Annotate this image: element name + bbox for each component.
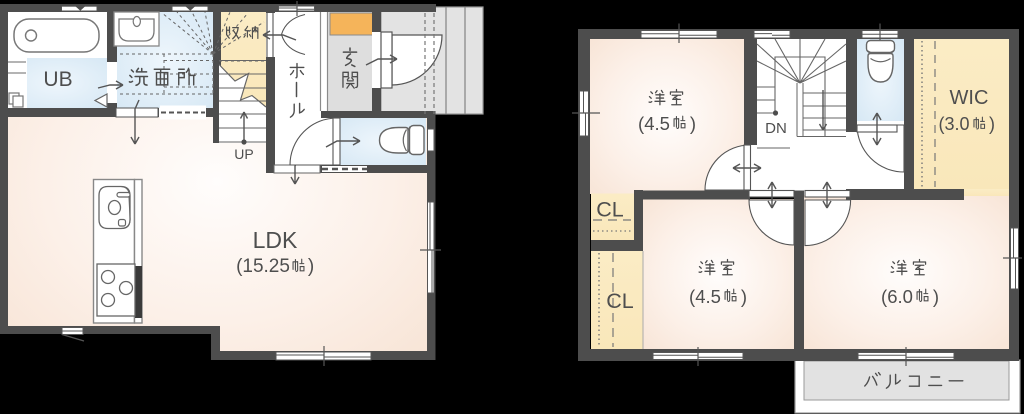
svg-text:WIC: WIC — [950, 87, 989, 109]
svg-text:): ) — [933, 286, 939, 307]
svg-text:): ) — [989, 114, 995, 134]
svg-text:(4.5: (4.5 — [689, 286, 721, 307]
svg-text:UP: UP — [234, 146, 253, 162]
svg-text:(4.5: (4.5 — [638, 113, 670, 134]
svg-text:LDK: LDK — [253, 227, 298, 253]
svg-text:(6.0: (6.0 — [881, 286, 913, 307]
svg-text:CL: CL — [606, 289, 634, 313]
svg-text:DN: DN — [765, 120, 787, 137]
svg-text:): ) — [308, 256, 314, 277]
svg-text:): ) — [690, 113, 696, 134]
svg-text:UB: UB — [43, 68, 72, 91]
svg-text:(15.25: (15.25 — [236, 256, 290, 277]
svg-text:CL: CL — [596, 198, 624, 222]
svg-text:(3.0: (3.0 — [938, 114, 969, 134]
svg-text:): ) — [741, 286, 747, 307]
